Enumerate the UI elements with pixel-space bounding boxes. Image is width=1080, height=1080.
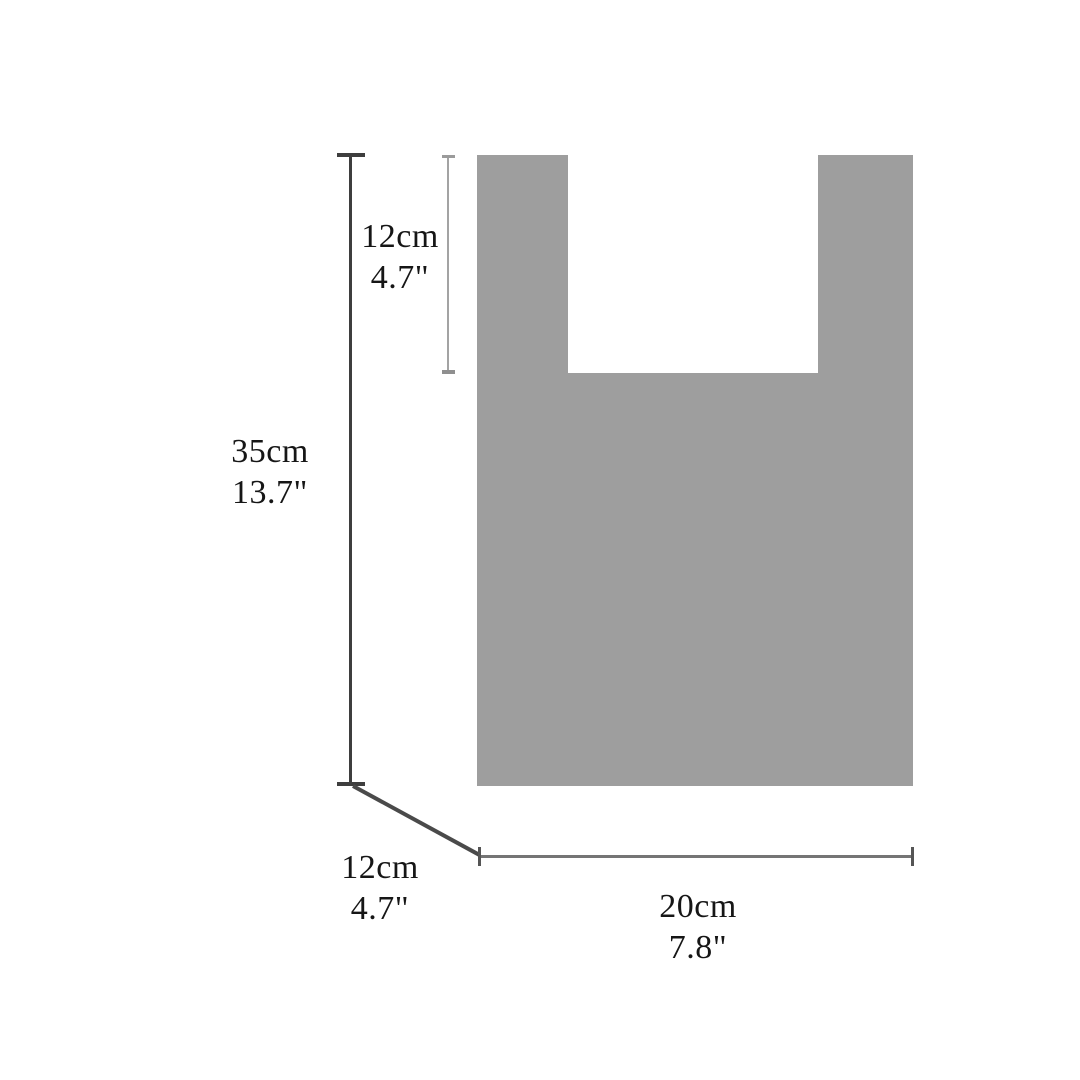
gusset-inch-value: 4.7" [341,888,419,929]
handle-depth-inch-value: 4.7" [361,257,439,298]
gusset-dimension-line [352,784,480,856]
height-dimension-line [349,155,352,784]
bag-handle-notch [568,155,818,373]
height-inch-value: 13.7" [231,472,309,513]
width-dimension-line [480,855,913,858]
height-dimension-cap-top [337,153,365,157]
width-cm-value: 20cm [659,886,737,927]
gusset-label: 12cm 4.7" [341,847,419,929]
width-label: 20cm 7.8" [659,886,737,968]
height-cm-value: 35cm [231,431,309,472]
width-inch-value: 7.8" [659,927,737,968]
handle-depth-cm-value: 12cm [361,216,439,257]
height-dimension-cap-bottom [337,782,365,786]
handle-depth-dimension-line [447,156,449,372]
height-label: 35cm 13.7" [231,431,309,513]
handle-depth-dimension-cap-top [442,155,455,158]
handle-depth-dimension-cap-bottom [442,370,455,374]
gusset-cm-value: 12cm [341,847,419,888]
handle-depth-label: 12cm 4.7" [361,216,439,298]
bag-dimension-diagram: 12cm 4.7" 35cm 13.7" 12cm 4.7" 20cm 7.8" [0,0,1080,1080]
width-dimension-tick-right [911,847,914,866]
width-dimension-tick-left [478,847,481,866]
